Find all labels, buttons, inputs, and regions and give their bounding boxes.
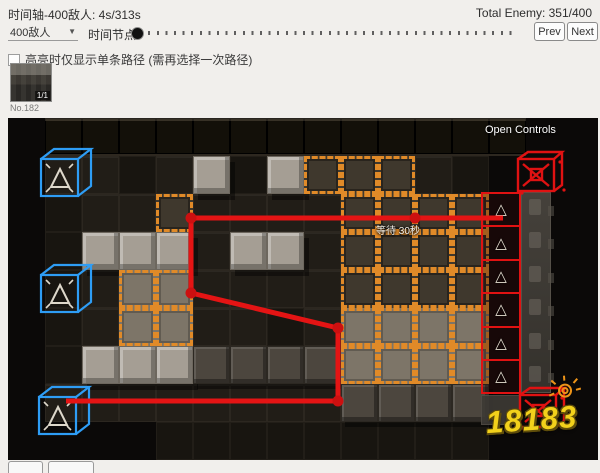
map-tile-orangeL bbox=[341, 346, 378, 384]
map-tile-ground bbox=[304, 232, 341, 270]
map-tile-mid bbox=[230, 346, 267, 384]
enemy-ghost-icon bbox=[529, 199, 541, 215]
map-tile-ground bbox=[230, 384, 267, 422]
map-tile-hi bbox=[119, 346, 156, 384]
enemy-count-select-value: 400敌人 bbox=[10, 24, 50, 40]
map-tile-ground bbox=[267, 270, 304, 308]
triangle-icon: △ bbox=[495, 202, 507, 217]
enemy-ghost-icon bbox=[529, 299, 541, 315]
map-tile-ground bbox=[193, 384, 230, 422]
map-tile-orange bbox=[341, 194, 378, 232]
map-tile-orange bbox=[341, 232, 378, 270]
map-tile-ground2 bbox=[415, 422, 452, 460]
map-tile-hi bbox=[267, 232, 304, 270]
map-tile-orange bbox=[415, 232, 452, 270]
bottom-button-partial[interactable] bbox=[8, 461, 43, 473]
map-tile-orange bbox=[378, 232, 415, 270]
map-tile-ground bbox=[304, 308, 341, 346]
protect-point-cube[interactable] bbox=[38, 146, 98, 205]
map-tile-roof bbox=[415, 118, 452, 156]
map-tile-hi bbox=[119, 232, 156, 270]
map-tile-ground bbox=[415, 156, 452, 194]
map-tile-ground bbox=[304, 270, 341, 308]
enemy-spawn-cell[interactable]: △ bbox=[481, 359, 521, 394]
enemy-spawn-cell[interactable]: △ bbox=[481, 259, 521, 294]
map-canvas[interactable]: Open Controls 等待 30秒 18183 △△△△△△ bbox=[8, 118, 598, 460]
map-tile-ground2 bbox=[230, 156, 267, 194]
map-tile-ground bbox=[193, 194, 230, 232]
sun-doodle-icon bbox=[544, 373, 582, 405]
map-tile-roof bbox=[304, 118, 341, 156]
map-tile-mid bbox=[415, 384, 452, 422]
map-tile-orange bbox=[378, 156, 415, 194]
thumbnail-caption: No.182 bbox=[10, 103, 39, 113]
protect-point-cube[interactable] bbox=[38, 262, 98, 321]
spawn-point-cube[interactable] bbox=[514, 150, 566, 201]
map-tile-roof bbox=[156, 118, 193, 156]
map-tile-mid bbox=[193, 346, 230, 384]
triangle-icon: △ bbox=[495, 302, 507, 317]
wait-annotation: 等待 30秒 bbox=[376, 222, 420, 237]
highlight-single-path-label: 高亮时仅显示单条路径 (需再选择一次路径) bbox=[25, 51, 252, 68]
map-tile-ground bbox=[230, 308, 267, 346]
map-tile-ground2 bbox=[267, 422, 304, 460]
enemy-ghost-icon bbox=[529, 333, 541, 349]
map-tile-ground bbox=[119, 384, 156, 422]
map-tile-ground2 bbox=[452, 422, 489, 460]
map-tile-mid bbox=[378, 384, 415, 422]
map-tile-ground2 bbox=[193, 422, 230, 460]
enemy-count-select[interactable]: 400敌人 ▼ bbox=[8, 23, 78, 41]
timeline-slider-track[interactable] bbox=[131, 31, 513, 35]
map-tile-orange bbox=[156, 194, 193, 232]
map-tile-hi bbox=[82, 346, 119, 384]
map-tile-ground bbox=[267, 194, 304, 232]
chevron-down-icon: ▼ bbox=[68, 27, 76, 36]
map-tile-hi bbox=[230, 232, 267, 270]
timeline-slider-thumb[interactable] bbox=[131, 27, 144, 40]
map-tile-hi bbox=[156, 232, 193, 270]
enemy-ghost-icon bbox=[529, 232, 541, 248]
map-tile-orange bbox=[415, 194, 452, 232]
map-tile-roof bbox=[193, 118, 230, 156]
map-tile-orange bbox=[378, 270, 415, 308]
map-tile-ground2 bbox=[156, 422, 193, 460]
map-tile-orangeL bbox=[378, 346, 415, 384]
timeline-title: 时间轴-400敌人: 4s/313s bbox=[8, 6, 141, 23]
thumbnail-page-badge: 1/1 bbox=[35, 91, 50, 100]
map-tile-ground bbox=[193, 232, 230, 270]
map-tile-ground bbox=[230, 270, 267, 308]
map-thumbnail[interactable]: 1/1 bbox=[10, 63, 52, 102]
map-tile-ground2 bbox=[230, 422, 267, 460]
map-tile-orangeL bbox=[341, 308, 378, 346]
triangle-icon: △ bbox=[495, 336, 507, 351]
map-tile-ground2 bbox=[452, 156, 489, 194]
map-tile-roof bbox=[341, 118, 378, 156]
prev-button[interactable]: Prev bbox=[534, 22, 565, 41]
timeline-slider[interactable] bbox=[131, 27, 513, 39]
watermark-text: 18183 bbox=[485, 399, 578, 440]
map-tile-ground bbox=[156, 384, 193, 422]
map-tile-mid bbox=[341, 384, 378, 422]
protect-point-cube[interactable] bbox=[36, 384, 96, 443]
map-tile-orangeL bbox=[415, 308, 452, 346]
map-tile-ground bbox=[119, 194, 156, 232]
map-tile-ground bbox=[193, 308, 230, 346]
triangle-icon: △ bbox=[495, 236, 507, 251]
map-tile-hi bbox=[193, 156, 230, 194]
map-tile-mid bbox=[304, 346, 341, 384]
enemy-spawn-cell[interactable]: △ bbox=[481, 326, 521, 361]
map-tile-orange bbox=[304, 156, 341, 194]
map-tile-mid bbox=[267, 346, 304, 384]
map-tile-ground2 bbox=[378, 422, 415, 460]
next-button[interactable]: Next bbox=[567, 22, 598, 41]
map-tile-ground bbox=[267, 384, 304, 422]
map-tile-orangeL bbox=[415, 346, 452, 384]
total-enemy-count: Total Enemy: 351/400 bbox=[476, 6, 592, 20]
map-tile-orangeL bbox=[119, 308, 156, 346]
triangle-icon: △ bbox=[495, 269, 507, 284]
bottom-button-partial[interactable] bbox=[48, 461, 94, 473]
enemy-ghost-icon bbox=[529, 366, 541, 382]
hidden-enemy-strip bbox=[521, 192, 551, 393]
map-tile-ground2 bbox=[119, 156, 156, 194]
map-tile-orangeL bbox=[378, 308, 415, 346]
map-tile-roof bbox=[119, 118, 156, 156]
map-tile-ground2 bbox=[45, 346, 82, 384]
map-tile-ground bbox=[156, 156, 193, 194]
map-tile-ground bbox=[304, 194, 341, 232]
map-tile-hi bbox=[156, 346, 193, 384]
map-tile-orange bbox=[415, 270, 452, 308]
map-tile-orange bbox=[341, 156, 378, 194]
watermark-logo: 18183 bbox=[485, 399, 579, 441]
map-tile-hi bbox=[267, 156, 304, 194]
map-tile-orangeL bbox=[156, 270, 193, 308]
map-tile-ground bbox=[304, 384, 341, 422]
enemy-spawn-cell[interactable]: △ bbox=[481, 225, 521, 260]
map-tile-ground bbox=[193, 270, 230, 308]
map-tile-roof bbox=[267, 118, 304, 156]
map-tile-orangeL bbox=[156, 308, 193, 346]
triangle-icon: △ bbox=[495, 369, 507, 384]
map-tile-ground bbox=[230, 194, 267, 232]
open-controls-button[interactable]: Open Controls bbox=[485, 124, 556, 136]
enemy-ghost-icon bbox=[529, 266, 541, 282]
map-tile-ground2 bbox=[267, 308, 304, 346]
map-tile-ground2 bbox=[304, 422, 341, 460]
map-tile-orange bbox=[341, 270, 378, 308]
map-tile-roof bbox=[452, 118, 489, 156]
map-tile-ground2 bbox=[341, 422, 378, 460]
map-tile-roof bbox=[230, 118, 267, 156]
map-tile-roof bbox=[378, 118, 415, 156]
enemy-spawn-cell[interactable]: △ bbox=[481, 292, 521, 327]
map-tile-orangeL bbox=[119, 270, 156, 308]
